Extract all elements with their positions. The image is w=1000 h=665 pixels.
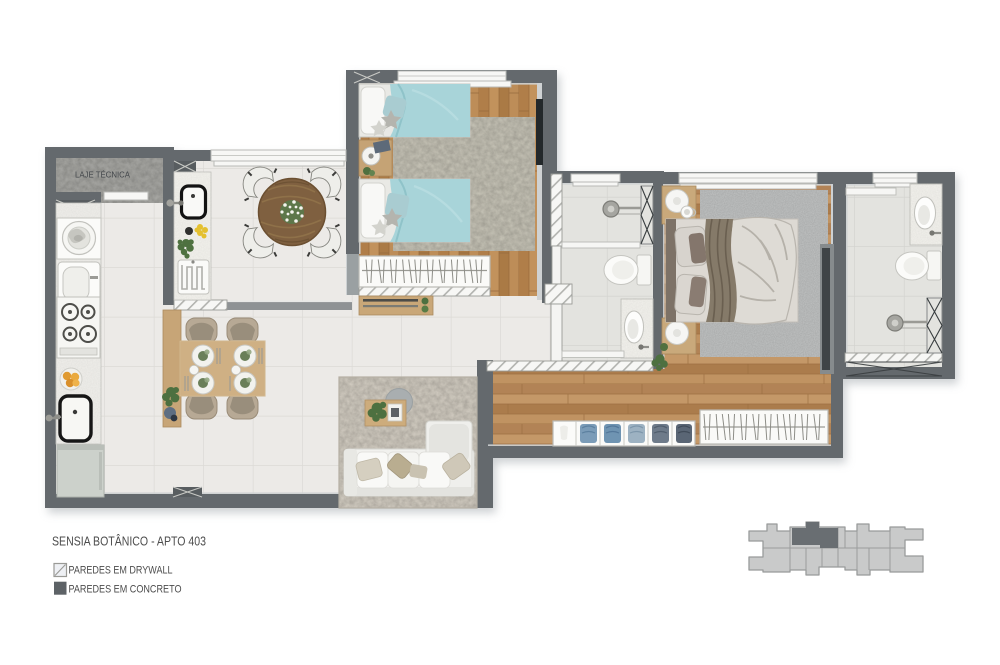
svg-text:PAREDES EM CONCRETO: PAREDES EM CONCRETO [69, 583, 182, 595]
svg-text:LAJE TÉCNICA: LAJE TÉCNICA [75, 170, 130, 180]
svg-text:SENSIA BOTÂNICO - APTO 403: SENSIA BOTÂNICO - APTO 403 [52, 534, 206, 549]
svg-text:PAREDES EM DRYWALL: PAREDES EM DRYWALL [69, 565, 173, 577]
